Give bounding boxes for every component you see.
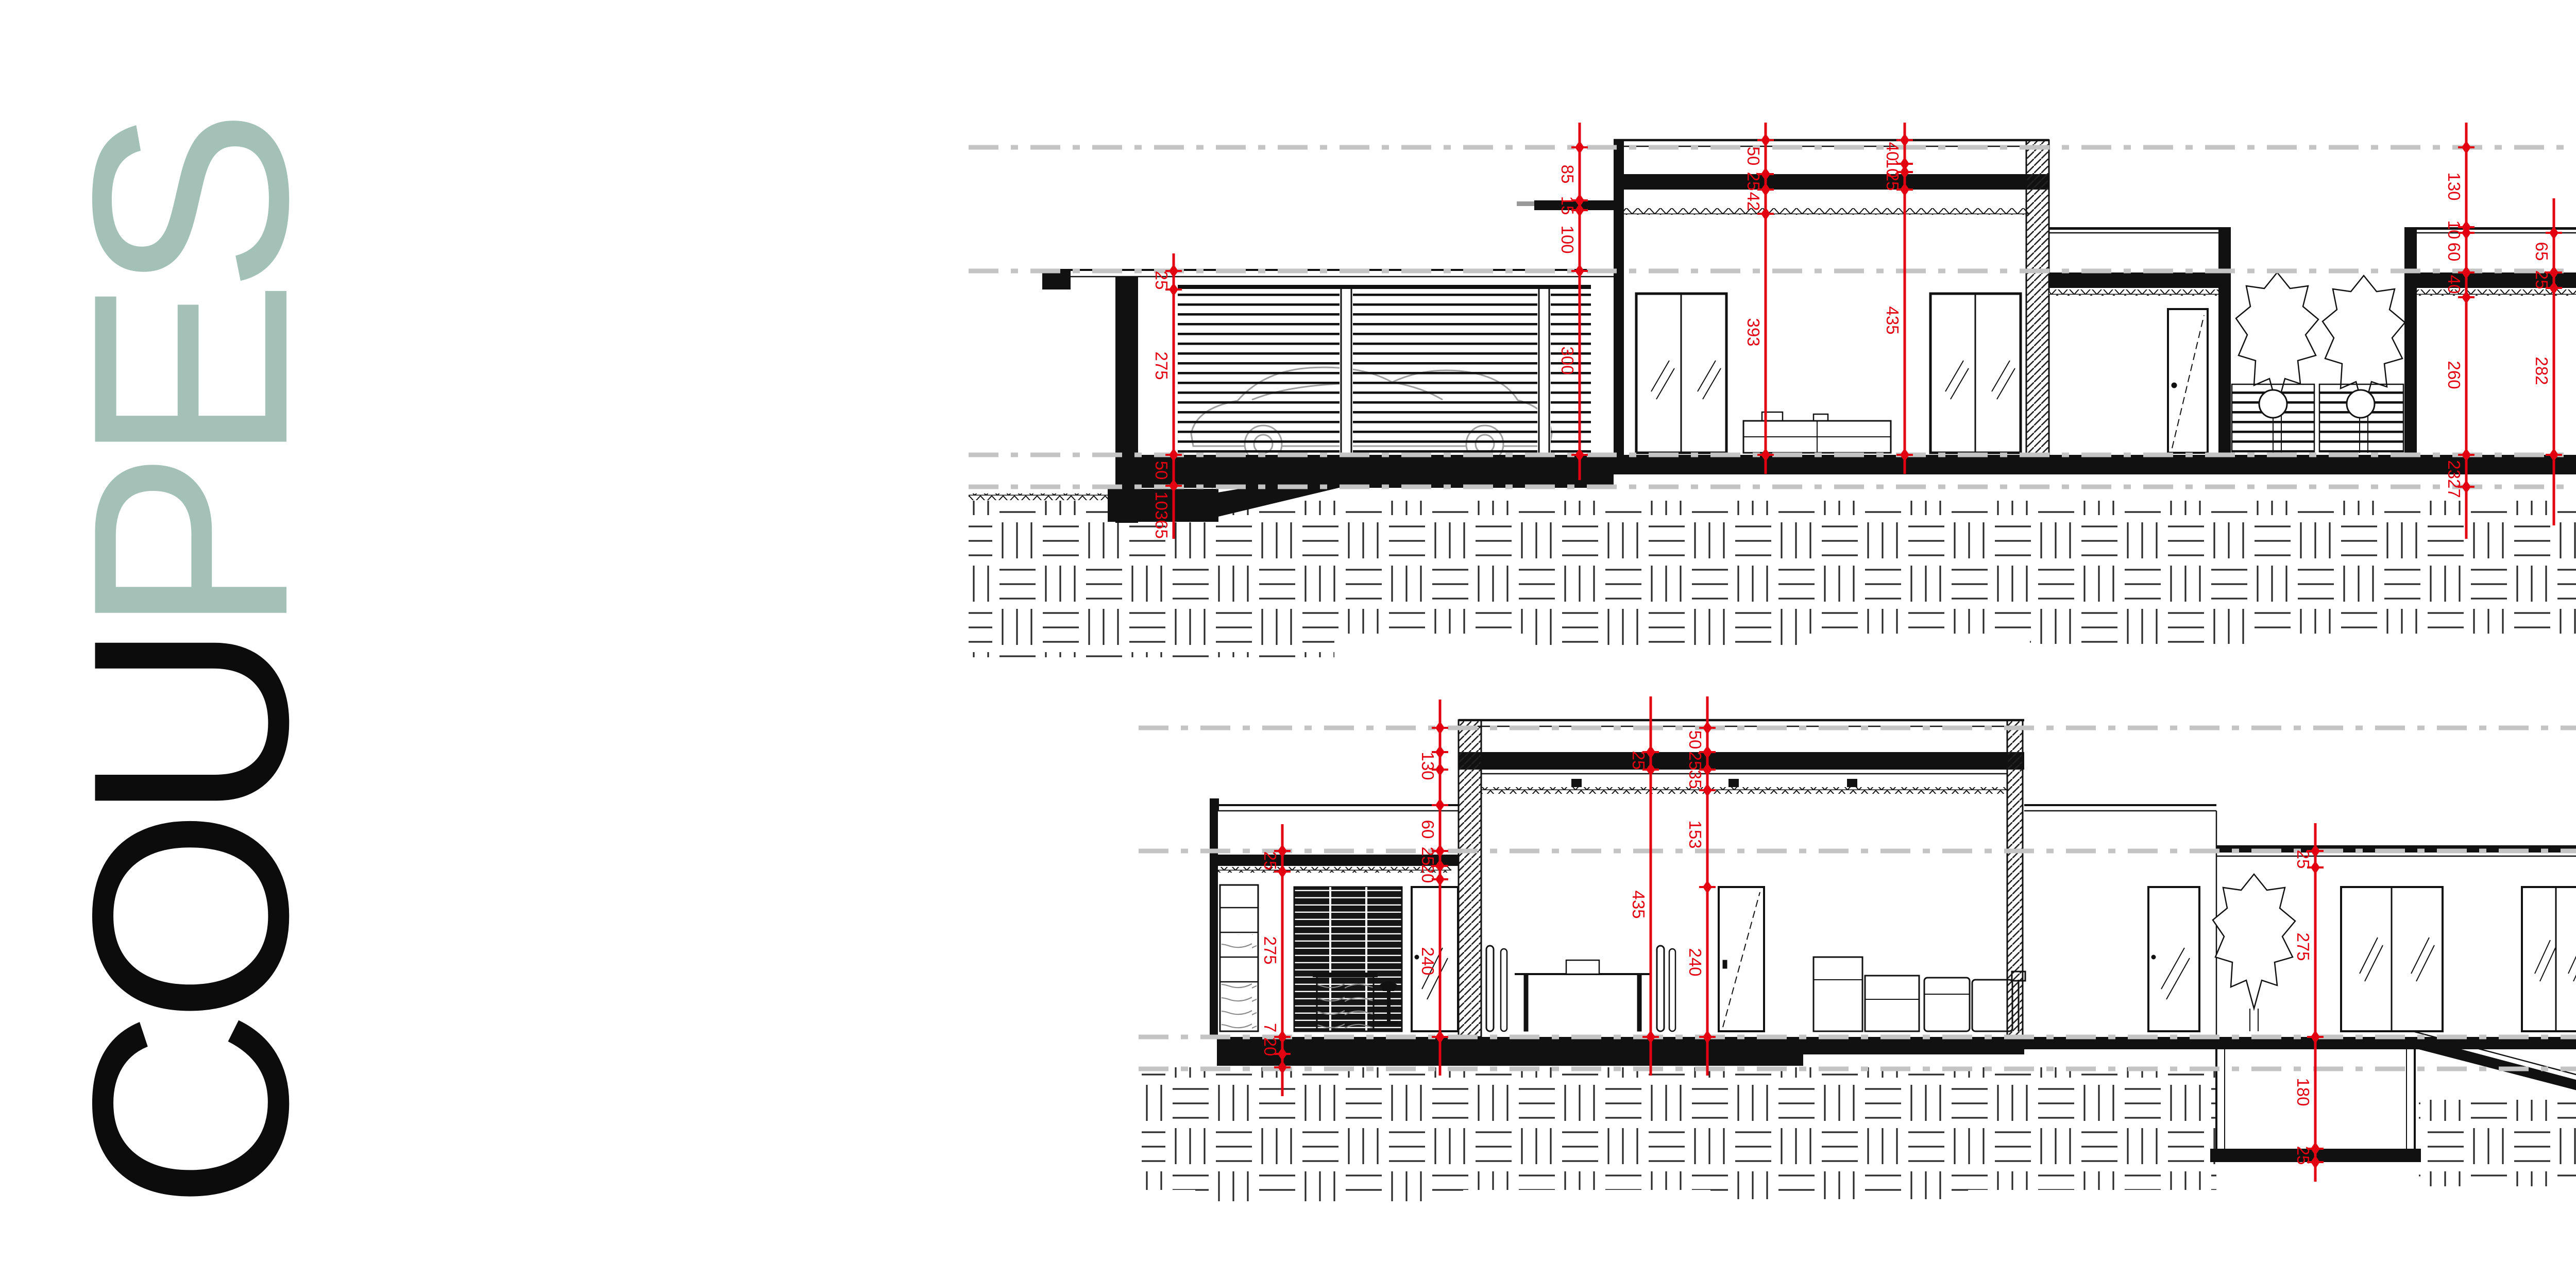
page-title-accent: PES: [35, 122, 346, 636]
dimension-value: 25: [1260, 851, 1280, 871]
section-drawing-top: [969, 140, 2576, 657]
sections-line-art: [0, 0, 2576, 1278]
page-title-black: COU: [35, 636, 346, 1211]
dimension-value: 10: [2444, 220, 2464, 240]
carport-louvers: [1178, 289, 1591, 453]
dimension-value: 25: [1883, 172, 1902, 191]
dimension-value: 100: [1557, 225, 1577, 253]
dimension-value: 25: [1418, 847, 1437, 866]
dimension-value: 275: [1151, 351, 1171, 380]
dimension-value: 435: [1883, 306, 1902, 334]
dimension-value: 50: [1685, 730, 1705, 749]
dimension-value: 240: [1418, 947, 1437, 975]
dimension-value: 20: [1260, 1037, 1280, 1057]
dimension-value: 25: [2293, 850, 2313, 869]
dimension-value: 393: [1743, 318, 1763, 346]
dimension-value: 275: [1260, 936, 1280, 964]
dimension-value: 35: [1685, 770, 1705, 789]
dimension-value: 2327: [2444, 460, 2464, 498]
page-title: COUPES: [52, 122, 330, 1211]
dimension-value: 7: [1260, 1023, 1280, 1032]
dimension-value: 25: [1685, 752, 1705, 771]
dining-set: [1486, 946, 1675, 1031]
dimension-value: 260: [2444, 361, 2464, 389]
dimension-value: 153: [1685, 820, 1705, 848]
dimension-value: 435: [1629, 890, 1648, 918]
dimension-value: 42: [1743, 192, 1763, 211]
dimension-value: 10365: [1151, 491, 1171, 539]
dimension-value: 130: [2444, 172, 2464, 200]
dimension-value: 25: [2293, 1146, 2313, 1165]
dimension-value: 25: [2532, 270, 2551, 289]
dimension-value: 300: [1557, 346, 1577, 374]
dimension-value: 65: [2532, 242, 2551, 261]
dimension-value: 50: [1743, 147, 1763, 166]
dimension-value: 50: [1151, 461, 1171, 480]
dimension-value: 60: [1418, 820, 1437, 839]
section-drawing-bottom: [1142, 720, 2576, 1201]
dimension-value: 60: [2444, 243, 2464, 262]
dimension-value: 40: [1883, 142, 1902, 161]
dimension-value: 25: [1629, 751, 1648, 770]
dimension-value: 130: [1418, 752, 1437, 780]
dimension-value: 40: [2444, 275, 2464, 294]
dimension-value: 282: [2532, 356, 2551, 385]
dimension-value: 25: [1151, 271, 1171, 290]
drawing-sheet: COUPES 500.00 cmNiveau Dalle Séjour300.0…: [0, 0, 2576, 1278]
dimension-value: 15: [1557, 196, 1577, 215]
dimension-value: 20: [1418, 864, 1437, 883]
patio-trees: [2232, 272, 2405, 453]
dimension-value: 275: [2293, 932, 2313, 961]
dimension-value: 180: [2293, 1078, 2313, 1106]
dimension-value: 25: [1743, 172, 1763, 191]
dimension-value: 85: [1557, 165, 1577, 184]
dimension-value: 240: [1685, 948, 1705, 976]
